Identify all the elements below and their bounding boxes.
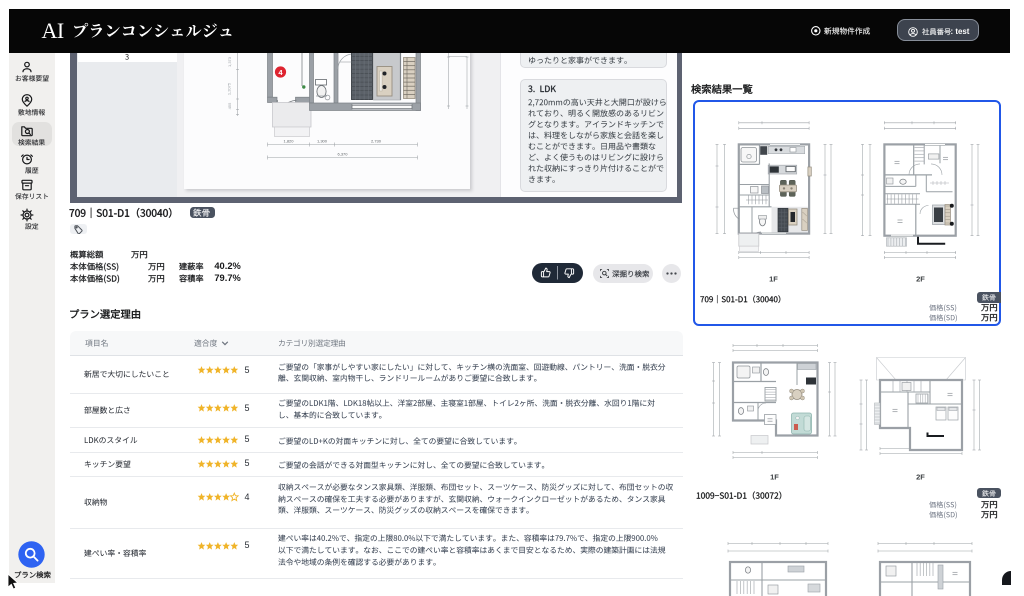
svg-text:6,370: 6,370	[337, 152, 348, 157]
svg-text:2,730: 2,730	[371, 139, 382, 144]
svg-text:1,2075: 1,2075	[227, 82, 232, 95]
svg-text:1,300: 1,300	[317, 139, 328, 144]
svg-text:1F: 1F	[769, 275, 778, 284]
svg-text:455: 455	[227, 102, 232, 109]
svg-text:1,820: 1,820	[283, 139, 294, 144]
svg-text:1,373: 1,373	[227, 56, 232, 67]
svg-text:2F: 2F	[916, 275, 925, 284]
svg-text:2F: 2F	[916, 473, 925, 482]
svg-text:1F: 1F	[770, 473, 779, 482]
